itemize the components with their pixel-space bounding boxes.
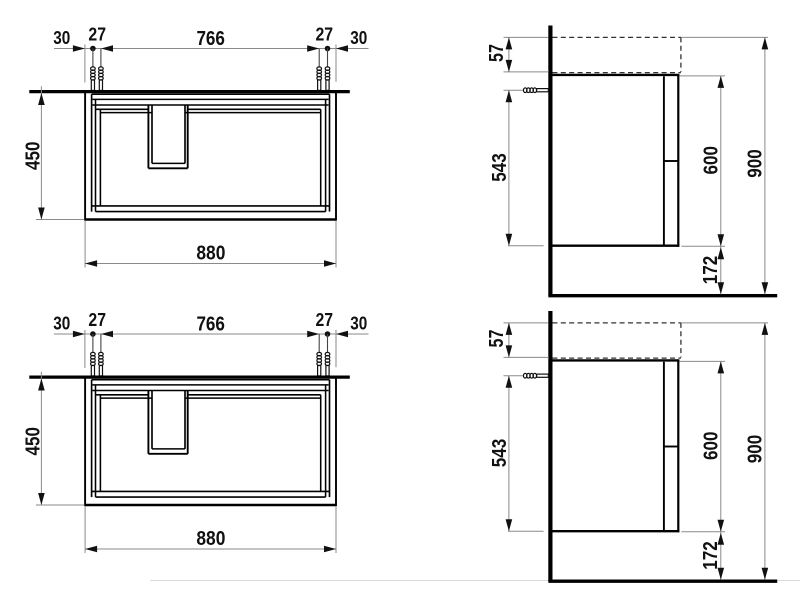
- svg-text:27: 27: [316, 25, 334, 45]
- svg-text:543: 543: [488, 439, 511, 468]
- svg-text:27: 27: [316, 310, 334, 330]
- svg-text:30: 30: [53, 314, 70, 334]
- svg-text:766: 766: [196, 312, 225, 335]
- svg-text:172: 172: [699, 541, 722, 570]
- svg-text:450: 450: [21, 427, 44, 456]
- svg-text:543: 543: [488, 153, 511, 182]
- svg-text:900: 900: [743, 149, 766, 178]
- svg-text:30: 30: [350, 314, 367, 334]
- svg-text:766: 766: [196, 27, 225, 50]
- svg-text:880: 880: [196, 242, 225, 265]
- svg-text:900: 900: [743, 435, 766, 464]
- svg-text:57: 57: [485, 330, 508, 348]
- svg-text:30: 30: [53, 28, 70, 48]
- svg-text:880: 880: [196, 527, 225, 550]
- svg-text:172: 172: [699, 256, 722, 285]
- svg-text:57: 57: [485, 44, 508, 62]
- svg-text:600: 600: [699, 432, 722, 461]
- svg-text:30: 30: [350, 28, 367, 48]
- svg-text:27: 27: [88, 25, 106, 45]
- svg-text:450: 450: [21, 142, 44, 171]
- svg-text:600: 600: [699, 146, 722, 175]
- svg-text:27: 27: [88, 310, 106, 330]
